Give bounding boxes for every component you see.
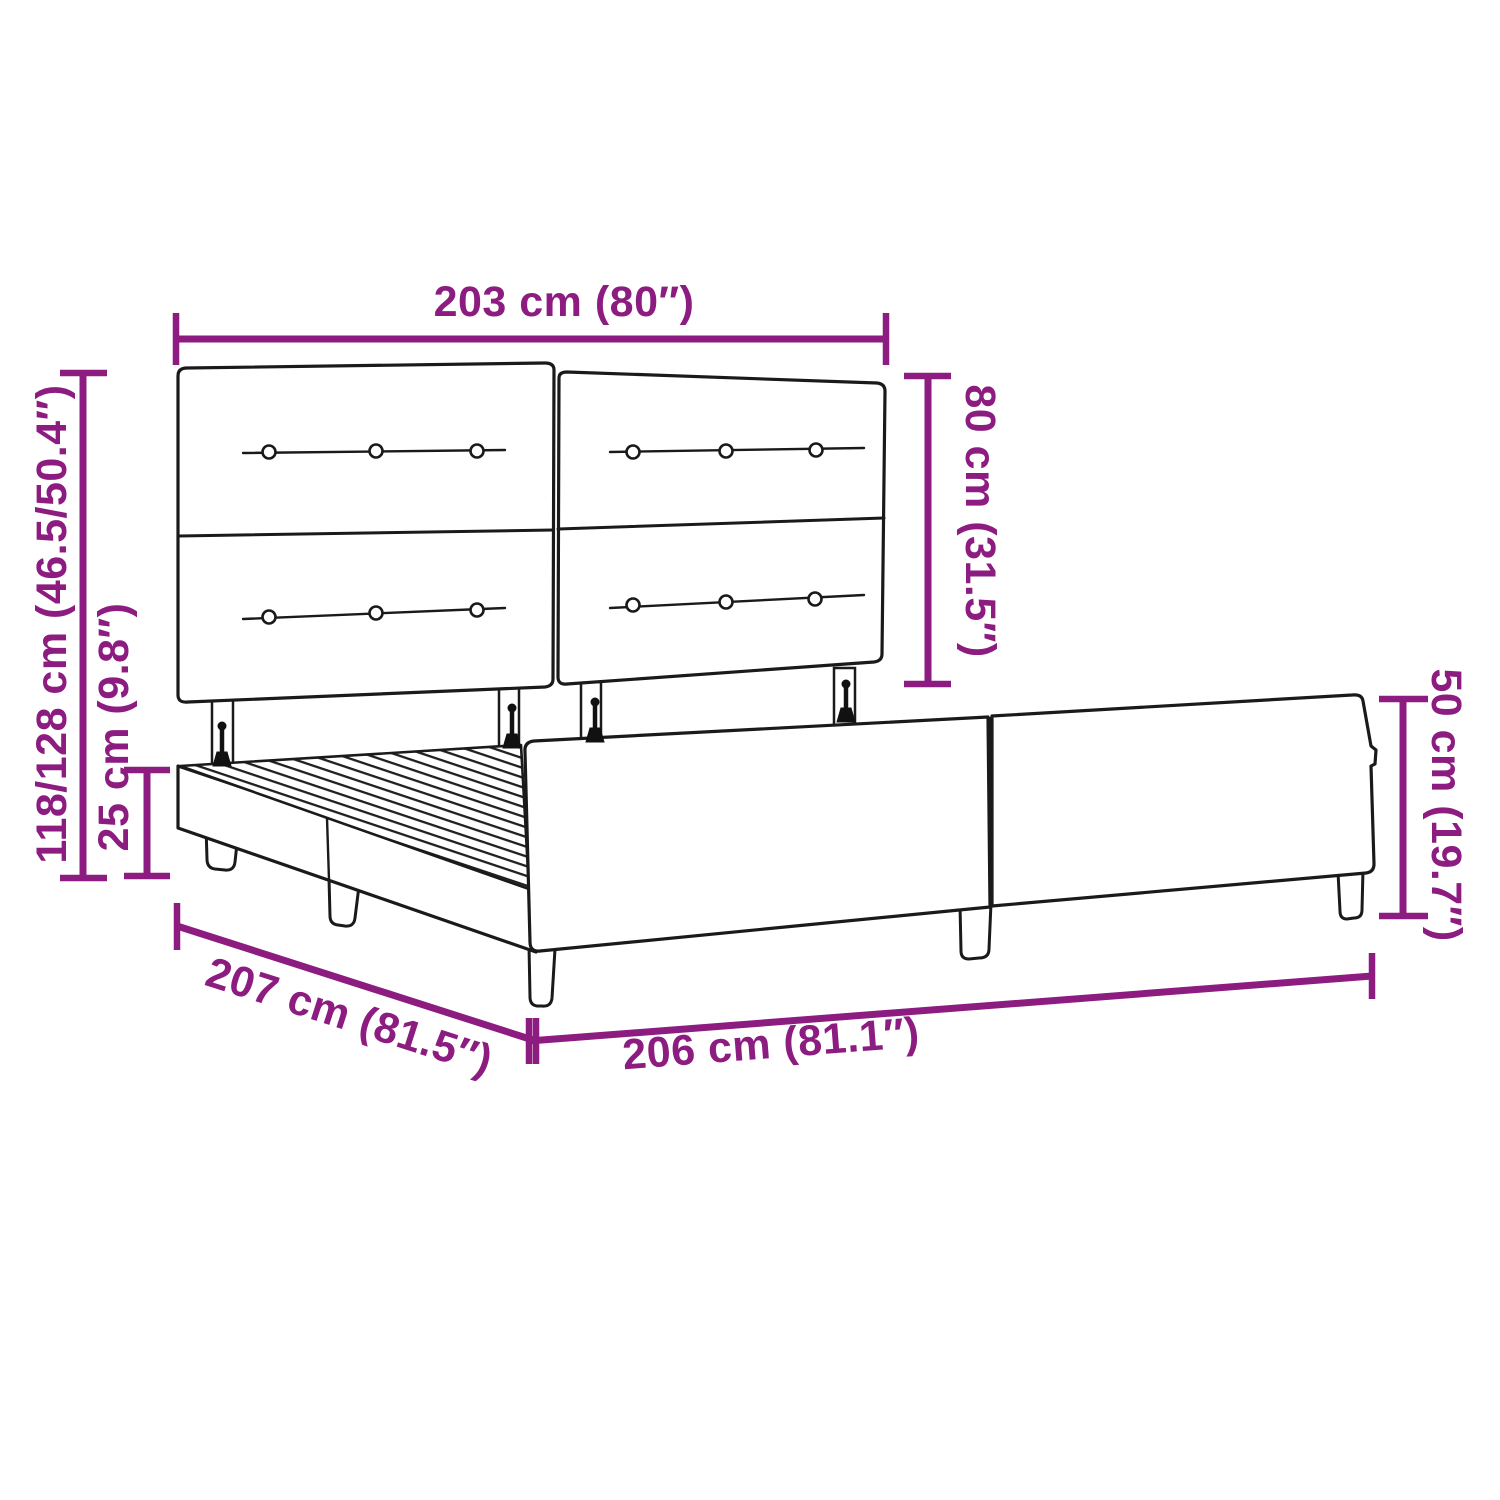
dim-side-rail-height-label: 50 cm (19.7″) [1422, 668, 1470, 941]
side-rail-panel-2 [992, 695, 1376, 906]
dim-overall-height-label: 118/128 cm (46.5/50.4″) [28, 384, 76, 863]
tufting-button [627, 446, 640, 459]
dim-frame-length-label: 206 cm (81.1″) [621, 1009, 922, 1080]
dim-headboard-width-label: 203 cm (80″) [434, 278, 695, 326]
bed-leg [529, 946, 555, 1006]
tufting-button [370, 607, 383, 620]
dim-headboard-width: 203 cm (80″) [176, 278, 886, 365]
bed-leg [1338, 870, 1363, 919]
tufting-button [370, 445, 383, 458]
dim-base-height: 25 cm (9.8″) [90, 603, 170, 876]
headboard-panel-left [178, 363, 554, 702]
tufting-button [263, 611, 276, 624]
dim-headboard-height: 80 cm (31.5″) [904, 376, 1004, 684]
bed-leg [960, 903, 991, 959]
tufting-button [720, 596, 733, 609]
tufting-button [809, 593, 822, 606]
tufting-button [471, 445, 484, 458]
tufting-button [263, 446, 276, 459]
diagram-canvas: 203 cm (80″) 80 cm (31.5″) 118/128 cm (4… [0, 0, 1500, 1500]
tufting-button [720, 445, 733, 458]
dim-headboard-height-label: 80 cm (31.5″) [956, 384, 1004, 657]
side-rail-panel-1 [525, 717, 990, 951]
dim-base-height-label: 25 cm (9.8″) [90, 603, 138, 852]
far-side-rail [525, 695, 1376, 951]
tufting-button [471, 604, 484, 617]
headboard [178, 363, 885, 702]
bed-frame-drawing [178, 363, 1376, 1006]
tufting-button [627, 599, 640, 612]
side-rail-joint [989, 717, 991, 906]
dim-frame-length: 206 cm (81.1″) [529, 953, 1372, 1079]
tufting-button [810, 444, 823, 457]
headboard-panel-right [558, 372, 885, 684]
dim-side-rail-height: 50 cm (19.7″) [1379, 668, 1470, 941]
bed-frame-dimension-diagram: 203 cm (80″) 80 cm (31.5″) 118/128 cm (4… [0, 0, 1500, 1500]
